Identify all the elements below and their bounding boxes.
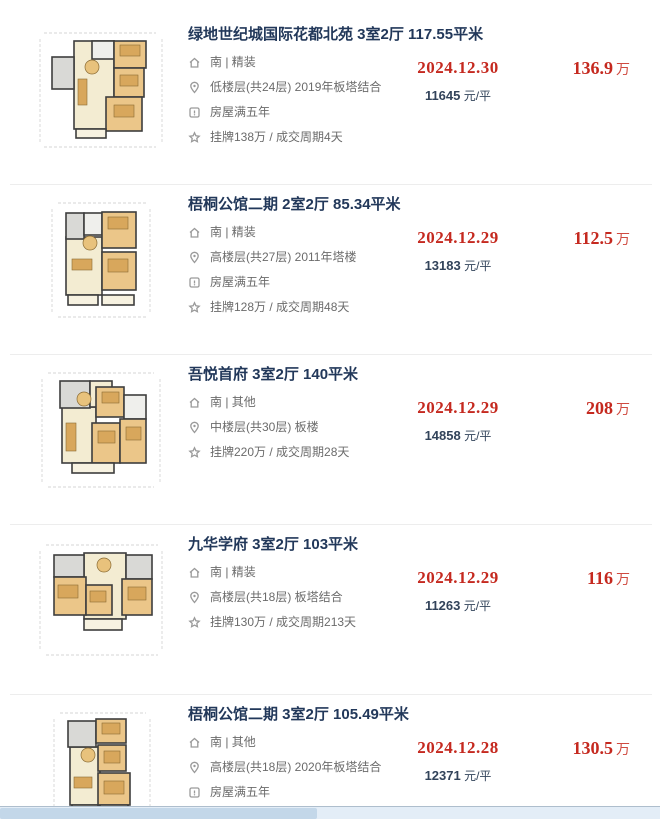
price-unit: 万 <box>616 231 630 247</box>
listing-item[interactable]: 吾悦首府 3室2厅 140平米 南 | 其他 中楼层(共30层) 板楼 挂牌22… <box>0 355 660 525</box>
shield-badge-icon <box>188 276 201 289</box>
floor-plan-image[interactable] <box>34 367 168 493</box>
deal-price: 130.5万 <box>532 738 660 759</box>
deal-price: 116万 <box>532 568 660 589</box>
floor-text: 高楼层(共18层) 2020年板塔结合 <box>210 760 381 774</box>
price-value: 136.9 <box>573 58 614 78</box>
tax-row: 房屋满五年 <box>188 105 384 119</box>
listed-text: 挂牌130万 / 成交周期213天 <box>210 615 356 629</box>
tax-row: 房屋满五年 <box>188 785 384 799</box>
listing-title[interactable]: 梧桐公馆二期 2室2厅 85.34平米 <box>188 195 660 215</box>
listing-title[interactable]: 绿地世纪城国际花都北苑 3室2厅 117.55平米 <box>188 25 660 45</box>
unit-price: 12371 元/平 <box>384 767 532 784</box>
horizontal-scrollbar[interactable] <box>0 806 660 819</box>
location-pin-icon <box>188 591 201 604</box>
orientation-text: 南 | 其他 <box>210 735 256 749</box>
location-pin-icon <box>188 421 201 434</box>
price-unit: 万 <box>616 401 630 417</box>
listed-text: 挂牌220万 / 成交周期28天 <box>210 445 349 459</box>
orientation-row: 南 | 精装 <box>188 55 384 69</box>
unit-price: 14858 元/平 <box>384 427 532 444</box>
unit-price: 11645 元/平 <box>384 87 532 104</box>
orientation-text: 南 | 精装 <box>210 225 256 239</box>
home-icon <box>188 566 201 579</box>
listed-text: 挂牌128万 / 成交周期48天 <box>210 300 349 314</box>
listed-row: 挂牌128万 / 成交周期48天 <box>188 300 384 314</box>
unit-price-value: 11263 <box>425 598 460 613</box>
unit-price-label: 元/平 <box>464 429 491 443</box>
price-value: 130.5 <box>573 738 614 758</box>
star-icon <box>188 616 201 629</box>
listing-item[interactable]: 梧桐公馆二期 3室2厅 105.49平米 南 | 其他 高楼层(共18层) 20… <box>0 695 660 819</box>
location-pin-icon <box>188 81 201 94</box>
home-icon <box>188 736 201 749</box>
horizontal-scrollbar-thumb[interactable] <box>0 808 317 819</box>
unit-price: 11263 元/平 <box>384 597 532 614</box>
location-pin-icon <box>188 761 201 774</box>
sold-listings-page: 绿地世纪城国际花都北苑 3室2厅 117.55平米 南 | 精装 低楼层(共24… <box>0 0 660 819</box>
home-icon <box>188 396 201 409</box>
floor-text: 低楼层(共24层) 2019年板塔结合 <box>210 80 381 94</box>
price-value: 116 <box>587 568 613 588</box>
orientation-text: 南 | 精装 <box>210 565 256 579</box>
listing-item[interactable]: 九华学府 3室2厅 103平米 南 | 精装 高楼层(共18层) 板塔结合 挂牌… <box>0 525 660 695</box>
floor-row: 高楼层(共27层) 2011年塔楼 <box>188 250 384 264</box>
home-icon <box>188 56 201 69</box>
listed-text: 挂牌138万 / 成交周期4天 <box>210 130 343 144</box>
home-icon <box>188 226 201 239</box>
listing-title[interactable]: 吾悦首府 3室2厅 140平米 <box>188 365 660 385</box>
star-icon <box>188 131 201 144</box>
star-icon <box>188 301 201 314</box>
price-unit: 万 <box>616 61 630 77</box>
unit-price-label: 元/平 <box>464 599 491 613</box>
listed-row: 挂牌130万 / 成交周期213天 <box>188 615 384 629</box>
price-unit: 万 <box>616 741 630 757</box>
unit-price-value: 14858 <box>425 428 461 443</box>
shield-badge-icon <box>188 786 201 799</box>
unit-price: 13183 元/平 <box>384 257 532 274</box>
floor-plan-image[interactable] <box>34 197 168 323</box>
shield-badge-icon <box>188 106 201 119</box>
floor-row: 高楼层(共18层) 2020年板塔结合 <box>188 760 384 774</box>
listing-item[interactable]: 绿地世纪城国际花都北苑 3室2厅 117.55平米 南 | 精装 低楼层(共24… <box>0 15 660 185</box>
unit-price-label: 元/平 <box>464 769 491 783</box>
orientation-row: 南 | 其他 <box>188 735 384 749</box>
floor-text: 中楼层(共30层) 板楼 <box>210 420 319 434</box>
listing-title[interactable]: 九华学府 3室2厅 103平米 <box>188 535 660 555</box>
unit-price-value: 11645 <box>425 88 460 103</box>
orientation-row: 南 | 精装 <box>188 565 384 579</box>
listing-title[interactable]: 梧桐公馆二期 3室2厅 105.49平米 <box>188 705 660 725</box>
unit-price-label: 元/平 <box>464 259 491 273</box>
deal-price: 136.9万 <box>532 58 660 79</box>
unit-price-value: 13183 <box>425 258 461 273</box>
floor-plan-image[interactable] <box>34 27 168 153</box>
listed-row: 挂牌138万 / 成交周期4天 <box>188 130 384 144</box>
floor-row: 低楼层(共24层) 2019年板塔结合 <box>188 80 384 94</box>
floor-row: 中楼层(共30层) 板楼 <box>188 420 384 434</box>
floor-plan-image[interactable] <box>34 537 168 663</box>
tax-text: 房屋满五年 <box>210 275 270 289</box>
deal-date: 2024.12.29 <box>384 398 532 418</box>
price-value: 112.5 <box>573 228 613 248</box>
listing-item[interactable]: 梧桐公馆二期 2室2厅 85.34平米 南 | 精装 高楼层(共27层) 201… <box>0 185 660 355</box>
tax-text: 房屋满五年 <box>210 785 270 799</box>
orientation-text: 南 | 精装 <box>210 55 256 69</box>
unit-price-label: 元/平 <box>464 89 491 103</box>
tax-text: 房屋满五年 <box>210 105 270 119</box>
deal-price: 208万 <box>532 398 660 419</box>
floor-row: 高楼层(共18层) 板塔结合 <box>188 590 384 604</box>
deal-date: 2024.12.29 <box>384 228 532 248</box>
unit-price-value: 12371 <box>425 768 461 783</box>
star-icon <box>188 446 201 459</box>
location-pin-icon <box>188 251 201 264</box>
deal-date: 2024.12.30 <box>384 58 532 78</box>
floor-text: 高楼层(共27层) 2011年塔楼 <box>210 250 356 264</box>
deal-date: 2024.12.29 <box>384 568 532 588</box>
orientation-text: 南 | 其他 <box>210 395 256 409</box>
listed-row: 挂牌220万 / 成交周期28天 <box>188 445 384 459</box>
orientation-row: 南 | 精装 <box>188 225 384 239</box>
deal-date: 2024.12.28 <box>384 738 532 758</box>
price-unit: 万 <box>616 571 630 587</box>
deal-price: 112.5万 <box>532 228 660 249</box>
floor-text: 高楼层(共18层) 板塔结合 <box>210 590 343 604</box>
floor-plan-image[interactable] <box>34 707 168 819</box>
tax-row: 房屋满五年 <box>188 275 384 289</box>
orientation-row: 南 | 其他 <box>188 395 384 409</box>
price-value: 208 <box>586 398 613 418</box>
